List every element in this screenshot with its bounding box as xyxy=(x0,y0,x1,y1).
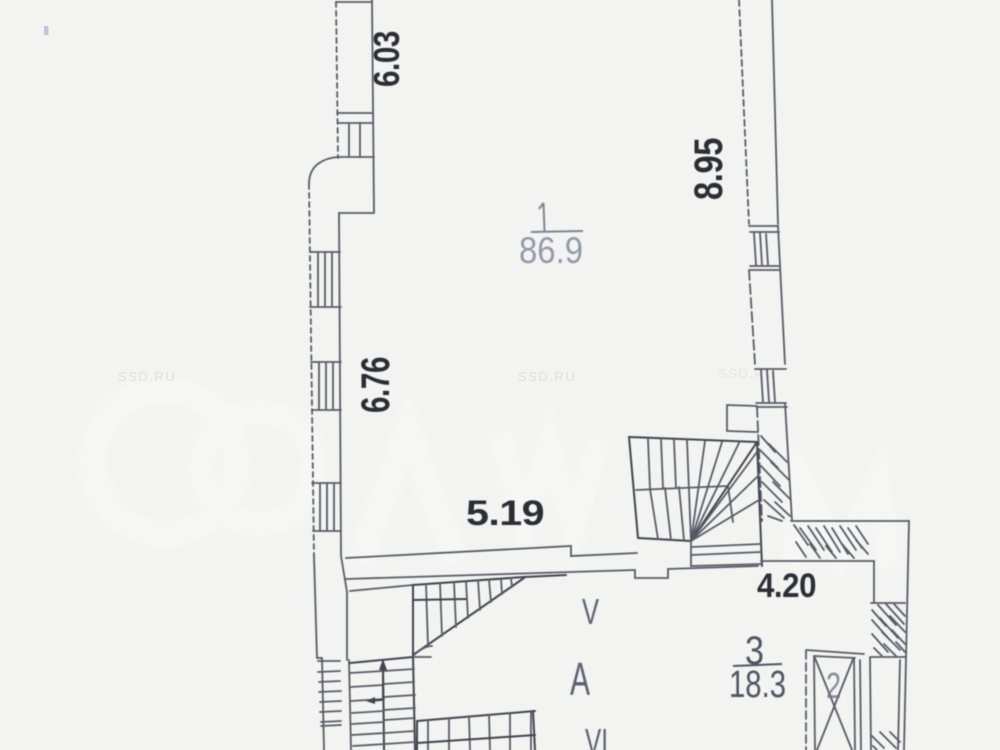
svg-text:86.9: 86.9 xyxy=(519,230,583,271)
svg-text:5.19: 5.19 xyxy=(466,494,544,533)
svg-text:6.03: 6.03 xyxy=(366,31,407,87)
svg-text:18.3: 18.3 xyxy=(729,664,786,706)
svg-text:SSD.RU: SSD.RU xyxy=(518,369,576,384)
svg-text:V: V xyxy=(582,591,599,632)
svg-text:SSD.RU: SSD.RU xyxy=(118,369,176,384)
svg-text:VI: VI xyxy=(585,721,608,750)
svg-text:4.20: 4.20 xyxy=(757,567,816,605)
svg-text:6.76: 6.76 xyxy=(354,357,398,413)
svg-text:A: A xyxy=(570,653,590,705)
svg-text:2: 2 xyxy=(826,665,841,706)
svg-text:8.95: 8.95 xyxy=(687,138,731,200)
